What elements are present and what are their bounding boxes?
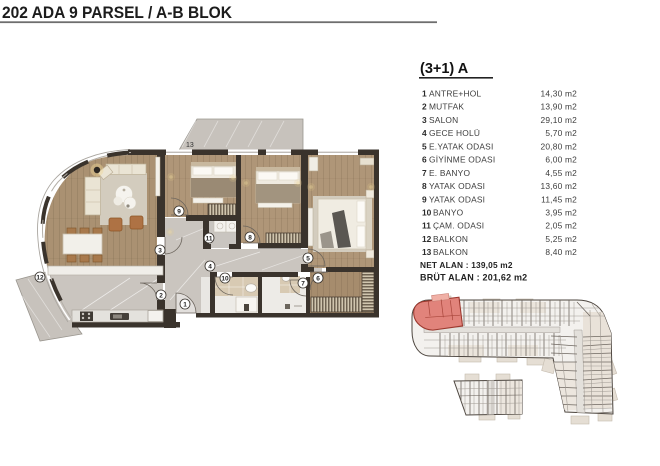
svg-text:13: 13 (422, 247, 432, 257)
svg-text:202 ADA 9 PARSEL / A-B BLOK: 202 ADA 9 PARSEL / A-B BLOK (2, 4, 232, 22)
svg-text:5,25 m2: 5,25 m2 (545, 234, 577, 244)
svg-text:E.YATAK ODASI: E.YATAK ODASI (429, 141, 494, 151)
svg-text:YATAK ODASI: YATAK ODASI (429, 194, 485, 204)
svg-text:7: 7 (422, 168, 427, 178)
svg-text:6,00 m2: 6,00 m2 (545, 155, 577, 165)
svg-text:ANTRE+HOL: ANTRE+HOL (429, 89, 481, 99)
svg-text:4,55 m2: 4,55 m2 (545, 168, 577, 178)
svg-text:20,80 m2: 20,80 m2 (540, 141, 577, 151)
svg-text:5,70 m2: 5,70 m2 (545, 128, 577, 138)
svg-text:GİYİNME ODASI: GİYİNME ODASI (429, 155, 495, 165)
svg-text:12: 12 (422, 234, 432, 244)
svg-text:(3+1) A: (3+1) A (420, 61, 469, 77)
svg-text:SALON: SALON (429, 115, 458, 125)
svg-text:4: 4 (422, 128, 427, 138)
svg-text:9: 9 (177, 208, 181, 215)
svg-text:BRÜT ALAN : 201,62 m2: BRÜT ALAN : 201,62 m2 (420, 273, 527, 283)
svg-text:11,45 m2: 11,45 m2 (541, 194, 577, 204)
svg-text:1: 1 (422, 89, 427, 99)
svg-text:4: 4 (208, 263, 212, 270)
svg-text:YATAK ODASI: YATAK ODASI (429, 181, 485, 191)
svg-text:2: 2 (159, 292, 163, 299)
svg-text:5: 5 (306, 255, 310, 262)
svg-text:11: 11 (422, 221, 431, 231)
svg-text:13: 13 (186, 142, 194, 149)
svg-text:13,90 m2: 13,90 m2 (540, 102, 577, 112)
svg-text:2,05 m2: 2,05 m2 (545, 221, 577, 231)
svg-text:BALKON: BALKON (433, 247, 468, 257)
svg-text:ÇAM. ODASI: ÇAM. ODASI (433, 221, 484, 231)
svg-text:9: 9 (422, 194, 427, 204)
svg-text:3,95 m2: 3,95 m2 (545, 208, 577, 218)
svg-text:8: 8 (248, 234, 252, 241)
svg-text:5: 5 (422, 141, 427, 151)
svg-text:MUTFAK: MUTFAK (429, 102, 464, 112)
svg-text:3: 3 (422, 115, 427, 125)
svg-text:2: 2 (422, 102, 427, 112)
svg-text:11: 11 (206, 235, 213, 242)
svg-text:10: 10 (221, 275, 229, 282)
svg-text:1: 1 (183, 301, 187, 308)
svg-text:6: 6 (316, 275, 320, 282)
svg-text:BANYO: BANYO (433, 208, 464, 218)
svg-text:NET ALAN : 139,05 m2: NET ALAN : 139,05 m2 (420, 260, 513, 270)
svg-text:8,40 m2: 8,40 m2 (545, 247, 577, 257)
svg-text:7: 7 (301, 280, 305, 287)
svg-text:6: 6 (422, 155, 427, 165)
svg-text:14,30 m2: 14,30 m2 (540, 89, 577, 99)
svg-text:13,60 m2: 13,60 m2 (540, 181, 577, 191)
svg-text:3: 3 (158, 247, 162, 254)
svg-text:BALKON: BALKON (433, 234, 468, 244)
svg-text:GECE HOLÜ: GECE HOLÜ (429, 128, 480, 138)
svg-text:12: 12 (36, 274, 44, 281)
svg-text:8: 8 (422, 181, 427, 191)
svg-text:E. BANYO: E. BANYO (429, 168, 470, 178)
svg-text:10: 10 (422, 208, 432, 218)
svg-text:29,10 m2: 29,10 m2 (540, 115, 577, 125)
